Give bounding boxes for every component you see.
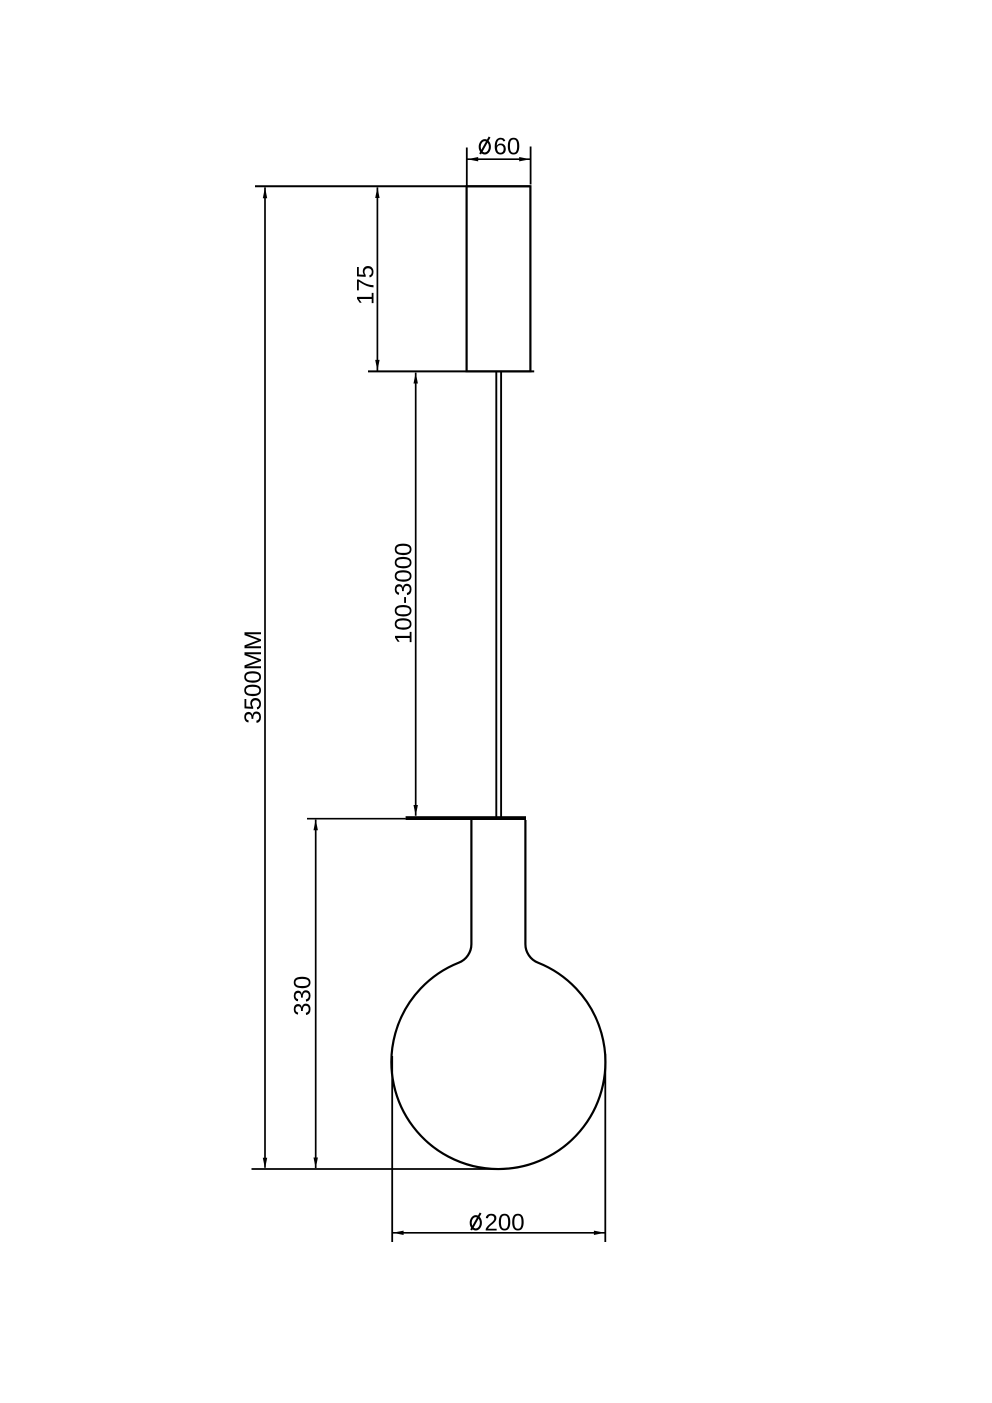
svg-text:60: 60 [494, 134, 521, 161]
svg-text:100-3000: 100-3000 [391, 543, 418, 644]
svg-text:175: 175 [352, 265, 379, 305]
svg-text:3500MM: 3500MM [240, 630, 267, 723]
svg-text:330: 330 [290, 976, 317, 1016]
svg-text:200: 200 [485, 1209, 525, 1236]
